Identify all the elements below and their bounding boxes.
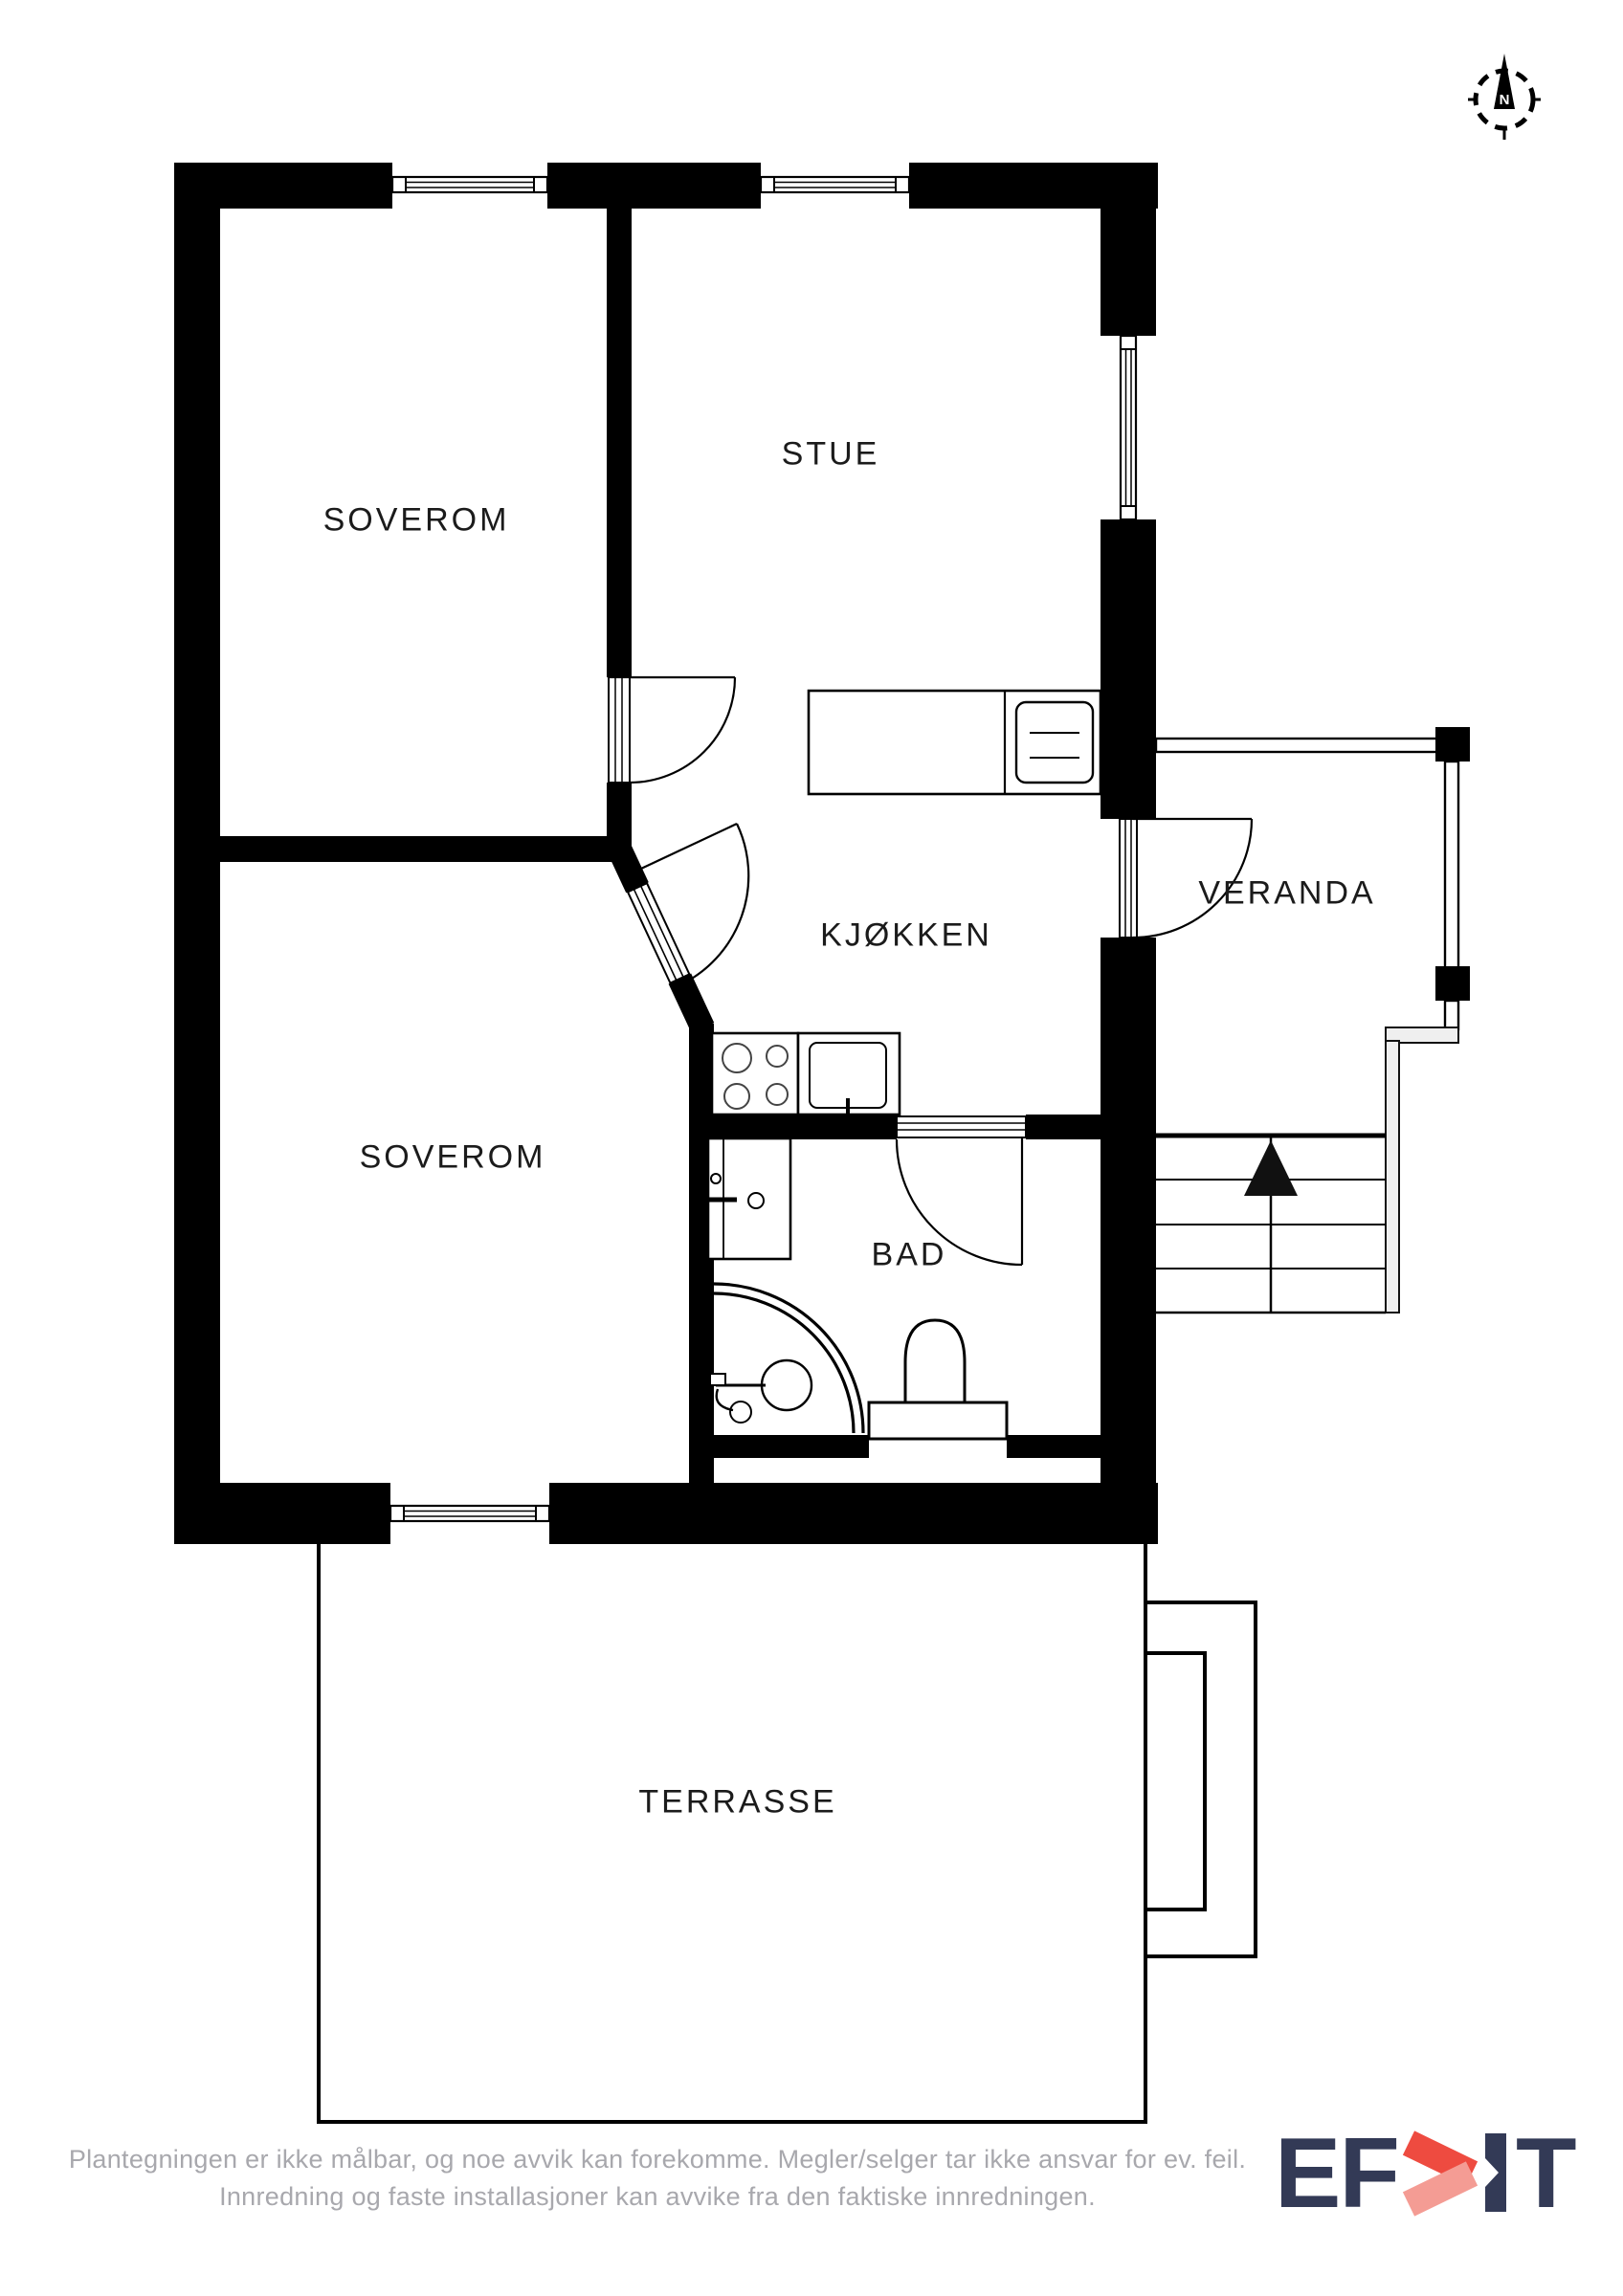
wall-between-soverom: [220, 836, 632, 862]
door-jamb-veranda: [1120, 819, 1137, 938]
door-jamb-soverom-top: [609, 677, 630, 783]
shower-icon: [710, 1284, 863, 1433]
railing-right-lower: [1445, 1001, 1458, 1029]
room-label-stue: STUE: [782, 436, 880, 474]
kitchen-fixtures: [712, 691, 1101, 1123]
terrasse-side-structure-inner: [1145, 1653, 1205, 1910]
stove-icon: [712, 1033, 798, 1115]
window-icon-bottom: [390, 1506, 549, 1521]
wall-left: [174, 209, 220, 1483]
room-label-terrasse: TERRASSE: [638, 1784, 836, 1821]
disclaimer: Plantegningen er ikke målbar, og noe avv…: [48, 2141, 1267, 2216]
bathroom-sink-icon: [708, 1138, 790, 1259]
window-icon-top-2: [761, 177, 909, 192]
floorplan-drawing: N EF T: [0, 0, 1623, 2296]
disclaimer-line-1: Plantegningen er ikke målbar, og noe avv…: [48, 2141, 1267, 2178]
door-arc-soverom-top: [630, 677, 735, 783]
kitchen-counter-icon: [809, 691, 1101, 794]
window-icon-right: [1121, 336, 1136, 519]
floorplan-page: N EF T SOVEROM STUE KJØKKEN VERANDA SOVE…: [0, 0, 1623, 2296]
terrasse-outline: [319, 1544, 1256, 2122]
wall-kjokken-bad-a: [714, 1115, 897, 1139]
wall-right-c: [1101, 938, 1156, 1483]
stairs-icon: [1156, 1136, 1386, 1313]
logo-ef: EF: [1275, 2118, 1398, 2229]
railing-post-top: [1435, 727, 1470, 762]
wall-top-b: [547, 163, 761, 209]
efkt-logo: EF T: [1275, 2118, 1577, 2229]
wall-kjokken-bad-b: [1026, 1115, 1101, 1139]
compass-icon: N: [1468, 54, 1541, 140]
kitchen-sink-icon: [798, 1033, 900, 1123]
room-label-soverom-top: SOVEROM: [323, 502, 510, 540]
door-jamb-bad: [897, 1116, 1026, 1137]
room-label-kjokken: KJØKKEN: [820, 917, 992, 955]
stair-railing: [1386, 1041, 1399, 1313]
door-jamb-soverom-bottom: [628, 883, 689, 982]
railing-post-mid: [1435, 966, 1470, 1001]
wall-bottom-a: [174, 1483, 390, 1544]
wall-top-a: [174, 163, 392, 209]
disclaimer-line-2: Innredning og faste installasjoner kan a…: [48, 2178, 1267, 2216]
wall-soverom-stue-stub: [607, 783, 632, 836]
wall-soverom-stue: [607, 209, 632, 677]
wall-diagonal-stub-top: [602, 831, 648, 893]
bathroom-fixtures: [708, 1138, 1007, 1439]
bad-ledge-b: [1007, 1435, 1101, 1458]
logo-t: T: [1516, 2118, 1577, 2229]
room-label-veranda: VERANDA: [1198, 875, 1375, 913]
interior-walls: [220, 209, 1101, 1483]
bad-ledge-a: [714, 1435, 869, 1458]
terrasse-side-structure: [1145, 1602, 1256, 1956]
room-label-soverom-bottom: SOVEROM: [360, 1139, 546, 1177]
wall-bottom-b: [549, 1483, 1158, 1544]
room-label-bad: BAD: [872, 1237, 947, 1274]
wall-top-c: [909, 163, 1158, 209]
railing-top: [1156, 739, 1439, 752]
compass-north-label: N: [1500, 92, 1510, 108]
logo-chevron-lower: [1409, 2174, 1472, 2204]
railing-right: [1445, 762, 1458, 968]
wall-right-b: [1101, 519, 1156, 819]
toilet-icon: [869, 1320, 1007, 1439]
wall-right-a: [1101, 209, 1156, 336]
window-icon-top-1: [392, 177, 547, 192]
stairs-up-arrow: [1244, 1140, 1298, 1196]
